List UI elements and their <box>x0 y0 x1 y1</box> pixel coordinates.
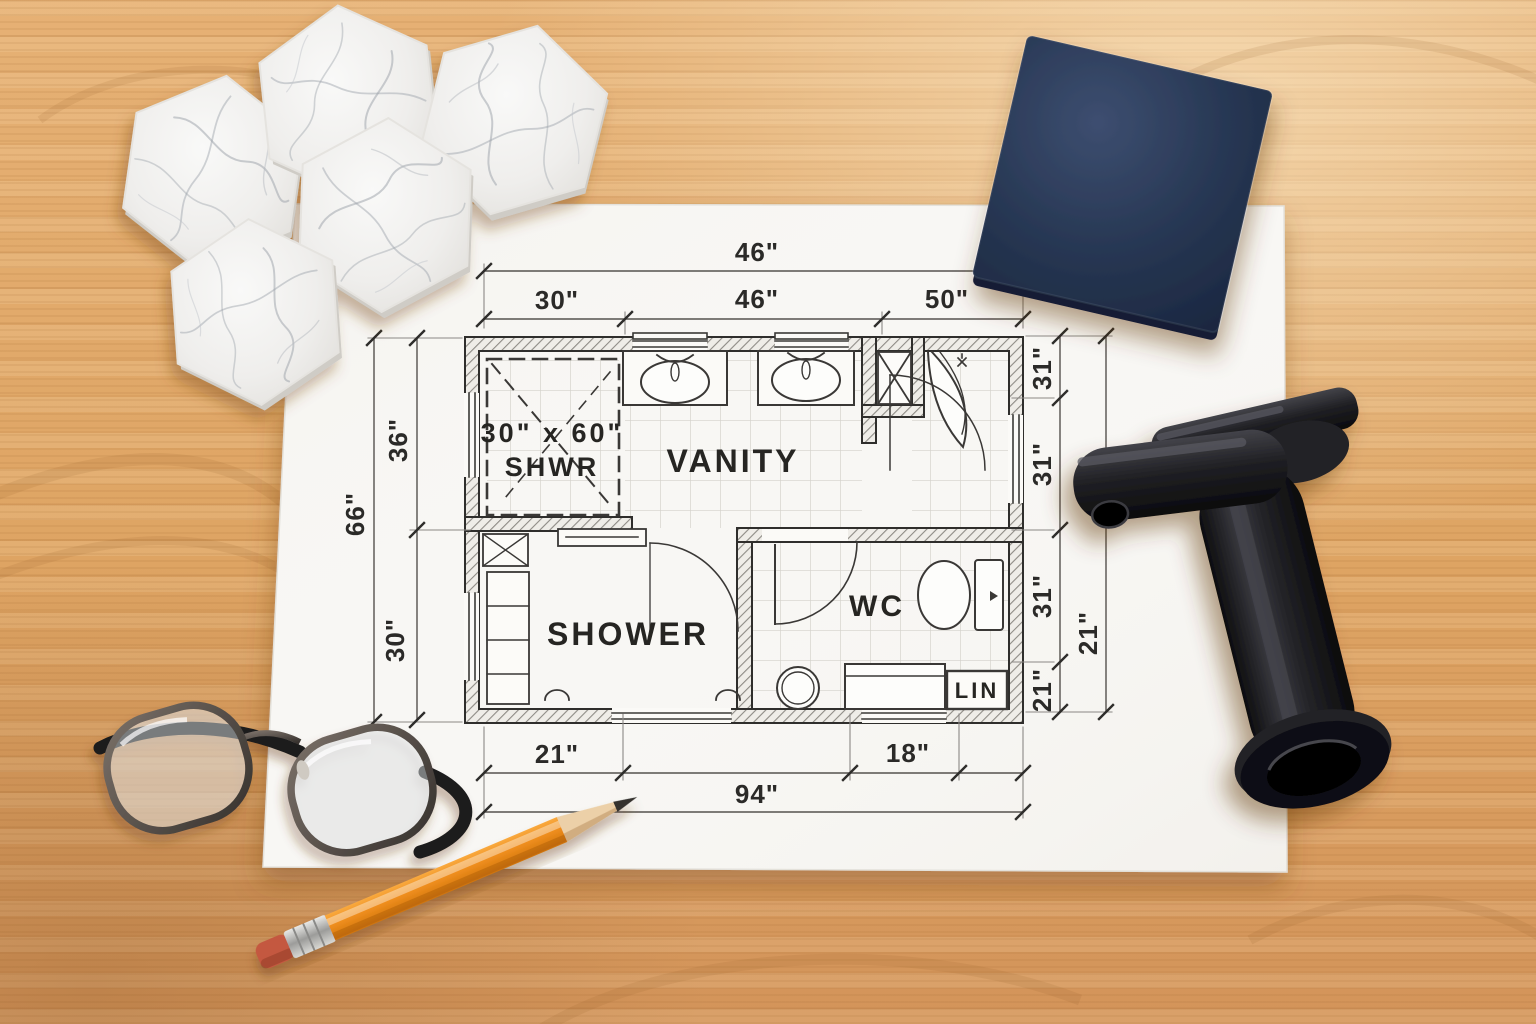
dim-left-total: 66" <box>340 492 370 536</box>
dim-bottom-seg-1: 18" <box>886 738 930 768</box>
scene-artwork: 30" x 60" SHWR VANITY SHOWER WC LIN <box>0 0 1536 1024</box>
dim-top-seg-1: 46" <box>735 284 779 314</box>
desk-scene: 30" x 60" SHWR VANITY SHOWER WC LIN <box>0 0 1536 1024</box>
dim-bottom-seg-0: 21" <box>535 739 579 769</box>
dim-bottom-total: 94" <box>735 779 779 809</box>
dim-right-seg-0: 31" <box>1027 346 1057 390</box>
dim-right-seg-3: 21" <box>1027 668 1057 712</box>
label-shwr-size: 30" x 60" <box>481 418 624 448</box>
glasses-lens-left <box>95 693 262 843</box>
dim-right-seg-1: 31" <box>1027 442 1057 486</box>
dim-right-total: 21" <box>1073 611 1103 655</box>
dim-left-seg-1: 30" <box>380 618 410 662</box>
dim-left-seg-0: 36" <box>383 418 413 462</box>
dim-top-seg-2: 50" <box>925 284 969 314</box>
label-lin: LIN <box>955 678 999 703</box>
label-shwr: SHWR <box>505 452 600 482</box>
dim-right-seg-2: 31" <box>1027 574 1057 618</box>
dim-top-total: 46" <box>735 237 779 267</box>
label-vanity: VANITY <box>667 443 800 479</box>
label-shower: SHOWER <box>547 616 709 652</box>
linen-closet-top <box>878 352 911 404</box>
label-wc: WC <box>849 590 905 623</box>
dim-top-seg-0: 30" <box>535 285 579 315</box>
